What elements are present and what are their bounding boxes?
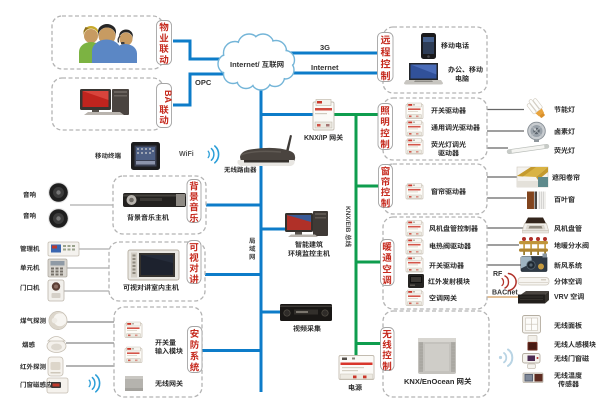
svg-text:无线温度: 无线温度 — [554, 372, 582, 380]
svg-text:电热阀驱动器: 电热阀驱动器 — [429, 243, 471, 251]
svg-text:传感器: 传感器 — [558, 381, 579, 389]
svg-text:煤气探测: 煤气探测 — [20, 317, 47, 325]
svg-text:无线路由器: 无线路由器 — [224, 166, 257, 174]
svg-text:3G: 3G — [320, 43, 330, 52]
svg-text:节能灯: 节能灯 — [554, 106, 575, 114]
svg-text:无线控制: 无线控制 — [382, 330, 392, 373]
svg-text:可视对讲室内主机: 可视对讲室内主机 — [123, 283, 179, 292]
svg-text:移动电话: 移动电话 — [441, 42, 469, 50]
svg-text:RF: RF — [493, 271, 503, 278]
svg-text:开关量: 开关量 — [155, 339, 176, 347]
svg-text:新风系统: 新风系统 — [554, 261, 582, 270]
svg-text:输入模块: 输入模块 — [155, 348, 183, 356]
svg-text:BA: BA — [163, 90, 173, 103]
svg-text:窗帘控制: 窗帘控制 — [381, 166, 391, 210]
svg-text:风机盘管控制器: 风机盘管控制器 — [429, 225, 478, 233]
svg-text:无线门窗磁: 无线门窗磁 — [554, 355, 589, 363]
svg-text:荧光灯调光: 荧光灯调光 — [431, 141, 466, 149]
svg-text:照明控制: 照明控制 — [380, 106, 390, 151]
svg-text:WiFi: WiFi — [179, 151, 194, 158]
svg-text:智能建筑: 智能建筑 — [295, 241, 323, 249]
svg-text:无线网关: 无线网关 — [155, 380, 183, 388]
svg-text:安防系统: 安防系统 — [190, 328, 200, 374]
svg-text:门窗磁感应: 门窗磁感应 — [20, 381, 53, 389]
svg-text:驱动器: 驱动器 — [438, 150, 459, 158]
svg-text:局域网: 局域网 — [249, 237, 256, 261]
svg-text:物业联动: 物业联动 — [159, 22, 169, 66]
svg-text:暖通空调: 暖通空调 — [382, 241, 392, 287]
svg-text:VRV 空调: VRV 空调 — [554, 292, 584, 301]
svg-text:电脑: 电脑 — [455, 75, 469, 83]
svg-text:Internet/ 互联网: Internet/ 互联网 — [230, 60, 284, 69]
svg-text:OPC: OPC — [195, 78, 212, 87]
svg-text:通用调光驱动器: 通用调光驱动器 — [431, 124, 480, 132]
svg-text:地暖分水阀: 地暖分水阀 — [554, 242, 589, 250]
svg-text:百叶窗: 百叶窗 — [554, 196, 575, 204]
svg-text:管理机: 管理机 — [20, 245, 40, 253]
svg-text:办公、移动: 办公、移动 — [448, 66, 483, 74]
svg-text:音响: 音响 — [23, 191, 37, 199]
svg-text:开关驱动器: 开关驱动器 — [431, 107, 466, 115]
svg-text:无线面板: 无线面板 — [554, 322, 582, 330]
svg-text:荧光灯: 荧光灯 — [554, 147, 575, 155]
svg-text:视频采集: 视频采集 — [293, 325, 321, 333]
svg-text:门口机: 门口机 — [20, 284, 40, 292]
svg-text:风机盘管: 风机盘管 — [554, 225, 582, 233]
svg-text:红外发射模块: 红外发射模块 — [428, 278, 470, 286]
svg-text:电源: 电源 — [348, 384, 362, 392]
svg-text:环境监控主机: 环境监控主机 — [288, 250, 330, 258]
svg-text:烟感: 烟感 — [22, 341, 36, 349]
svg-text:背景音乐主机: 背景音乐主机 — [127, 213, 169, 222]
svg-text:开关驱动器: 开关驱动器 — [429, 262, 464, 270]
svg-text:音响: 音响 — [23, 212, 37, 220]
svg-text:空调网关: 空调网关 — [429, 294, 457, 303]
svg-text:红外探测: 红外探测 — [20, 363, 47, 371]
svg-text:无线人感模块: 无线人感模块 — [554, 341, 596, 349]
svg-text:联动: 联动 — [159, 105, 169, 127]
svg-text:Internet: Internet — [311, 63, 339, 72]
svg-text:BACnet: BACnet — [492, 290, 518, 297]
svg-text:卤素灯: 卤素灯 — [554, 128, 575, 136]
svg-text:KNX/IP 网关: KNX/IP 网关 — [304, 134, 343, 142]
svg-text:可视对讲: 可视对讲 — [189, 243, 199, 286]
svg-text:窗帘驱动器: 窗帘驱动器 — [431, 188, 466, 196]
svg-text:KNX/EnOcean 网关: KNX/EnOcean 网关 — [404, 377, 472, 386]
svg-text:单元机: 单元机 — [20, 264, 40, 272]
svg-text:分体空调: 分体空调 — [554, 277, 582, 286]
svg-text:移动终端: 移动终端 — [95, 152, 122, 160]
svg-text:遮阳卷帘: 遮阳卷帘 — [552, 174, 580, 182]
svg-text:背景音乐: 背景音乐 — [189, 181, 199, 225]
svg-text:KNX/EIB 总线: KNX/EIB 总线 — [344, 206, 352, 248]
